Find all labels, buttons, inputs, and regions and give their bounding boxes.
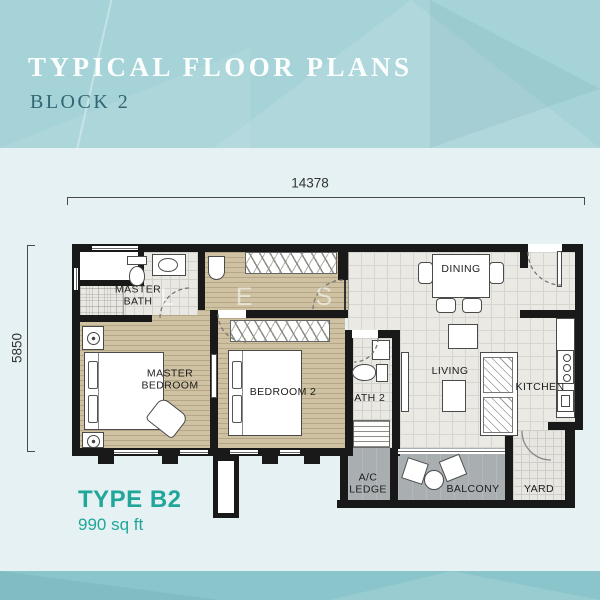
lamp-icon	[87, 435, 100, 448]
column-fin	[213, 456, 239, 518]
dimension-depth-line	[27, 245, 35, 452]
balcony-sliding-door	[398, 449, 505, 454]
sink-basin	[561, 395, 570, 407]
header-banner: TYPICAL FLOOR PLANS BLOCK 2	[0, 0, 600, 148]
wall-ledge-balcony	[390, 448, 398, 508]
chair-icon	[436, 298, 456, 313]
watermark-text: L E S	[160, 283, 360, 312]
wall-entry-stub	[520, 244, 528, 268]
pillow-icon	[232, 361, 242, 389]
entry-door-leaf	[557, 251, 562, 287]
kitchen-sink-icon	[557, 390, 574, 412]
wall-bottom-outdoor	[337, 500, 570, 508]
footer-decor-triangle	[0, 571, 220, 600]
sofa-cushion	[483, 397, 513, 433]
pier	[162, 456, 178, 464]
wall-bottom-bedrooms	[72, 448, 345, 456]
burner-icon	[563, 354, 571, 362]
wall-top	[72, 244, 583, 252]
room-label-ac-ledge: A/C LEDGE	[345, 472, 391, 497]
pillow-icon	[88, 361, 98, 389]
pier	[262, 456, 278, 464]
pier	[98, 456, 114, 464]
sink-icon	[158, 258, 178, 272]
stove-icon	[557, 350, 574, 384]
sink-icon	[372, 340, 390, 360]
pillow-icon	[232, 395, 242, 423]
sofa-icon	[480, 352, 518, 436]
wall-foyer-kitchen	[520, 310, 575, 318]
unit-type-label: TYPE B2	[78, 486, 182, 514]
burner-icon	[563, 364, 571, 372]
bath2-door-opening	[352, 330, 378, 338]
room-label-living: LIVING	[418, 365, 482, 377]
footer-banner	[0, 571, 600, 600]
unit-area-label: 990 sq ft	[78, 515, 143, 535]
tv-console-icon	[401, 352, 409, 412]
wardrobe-bedroom2-icon	[230, 320, 330, 342]
window	[114, 450, 158, 454]
armchair-icon	[448, 324, 478, 349]
window	[180, 450, 208, 454]
wall-yard-right	[565, 430, 575, 508]
dimension-width-line	[67, 197, 585, 205]
header-decor-triangle	[0, 30, 250, 148]
pillow-icon	[88, 395, 98, 423]
dimension-width-label: 14378	[291, 176, 329, 191]
window	[92, 246, 138, 250]
wall-right	[575, 244, 583, 430]
room-label-bedroom2: BEDROOM 2	[233, 386, 333, 398]
wall-balcony-yard	[505, 430, 513, 508]
wall-corridor-stub	[338, 252, 348, 280]
wall-kitchen-bottom	[548, 422, 583, 430]
chair-icon	[462, 298, 482, 313]
nightstand-icon	[82, 326, 104, 350]
lamp-icon	[87, 332, 100, 345]
room-label-kitchen: KITCHEN	[504, 381, 576, 393]
dimension-depth-label: 5850	[10, 333, 25, 363]
room-label-bath2: BATH 2	[331, 392, 401, 404]
toilet-tank-icon	[376, 364, 388, 382]
wall-masterbath-bottom	[72, 315, 152, 322]
coffee-table-icon	[442, 380, 466, 412]
footer-decor-triangle	[330, 571, 600, 600]
brochure-page: TYPICAL FLOOR PLANS BLOCK 2 14378 5850	[0, 0, 600, 600]
page-subtitle: BLOCK 2	[30, 91, 130, 114]
page-title: TYPICAL FLOOR PLANS	[28, 52, 413, 83]
window	[230, 450, 258, 454]
ledge-louver	[353, 420, 390, 448]
room-label-dining: DINING	[426, 263, 496, 275]
room-label-master-bedroom: MASTER BEDROOM	[128, 368, 212, 393]
bed-fold-line	[98, 353, 99, 429]
nightstand-icon	[82, 432, 104, 448]
wardrobe-master-icon	[245, 252, 337, 274]
toilet-tank-icon	[127, 256, 147, 265]
pier	[304, 456, 320, 464]
toilet-bowl-icon	[352, 364, 376, 381]
room-label-yard: YARD	[509, 483, 569, 495]
basin-icon	[208, 256, 225, 280]
window	[74, 268, 78, 290]
room-label-balcony: BALCONY	[433, 483, 513, 495]
dining-table-icon	[432, 254, 490, 298]
window	[280, 450, 300, 454]
